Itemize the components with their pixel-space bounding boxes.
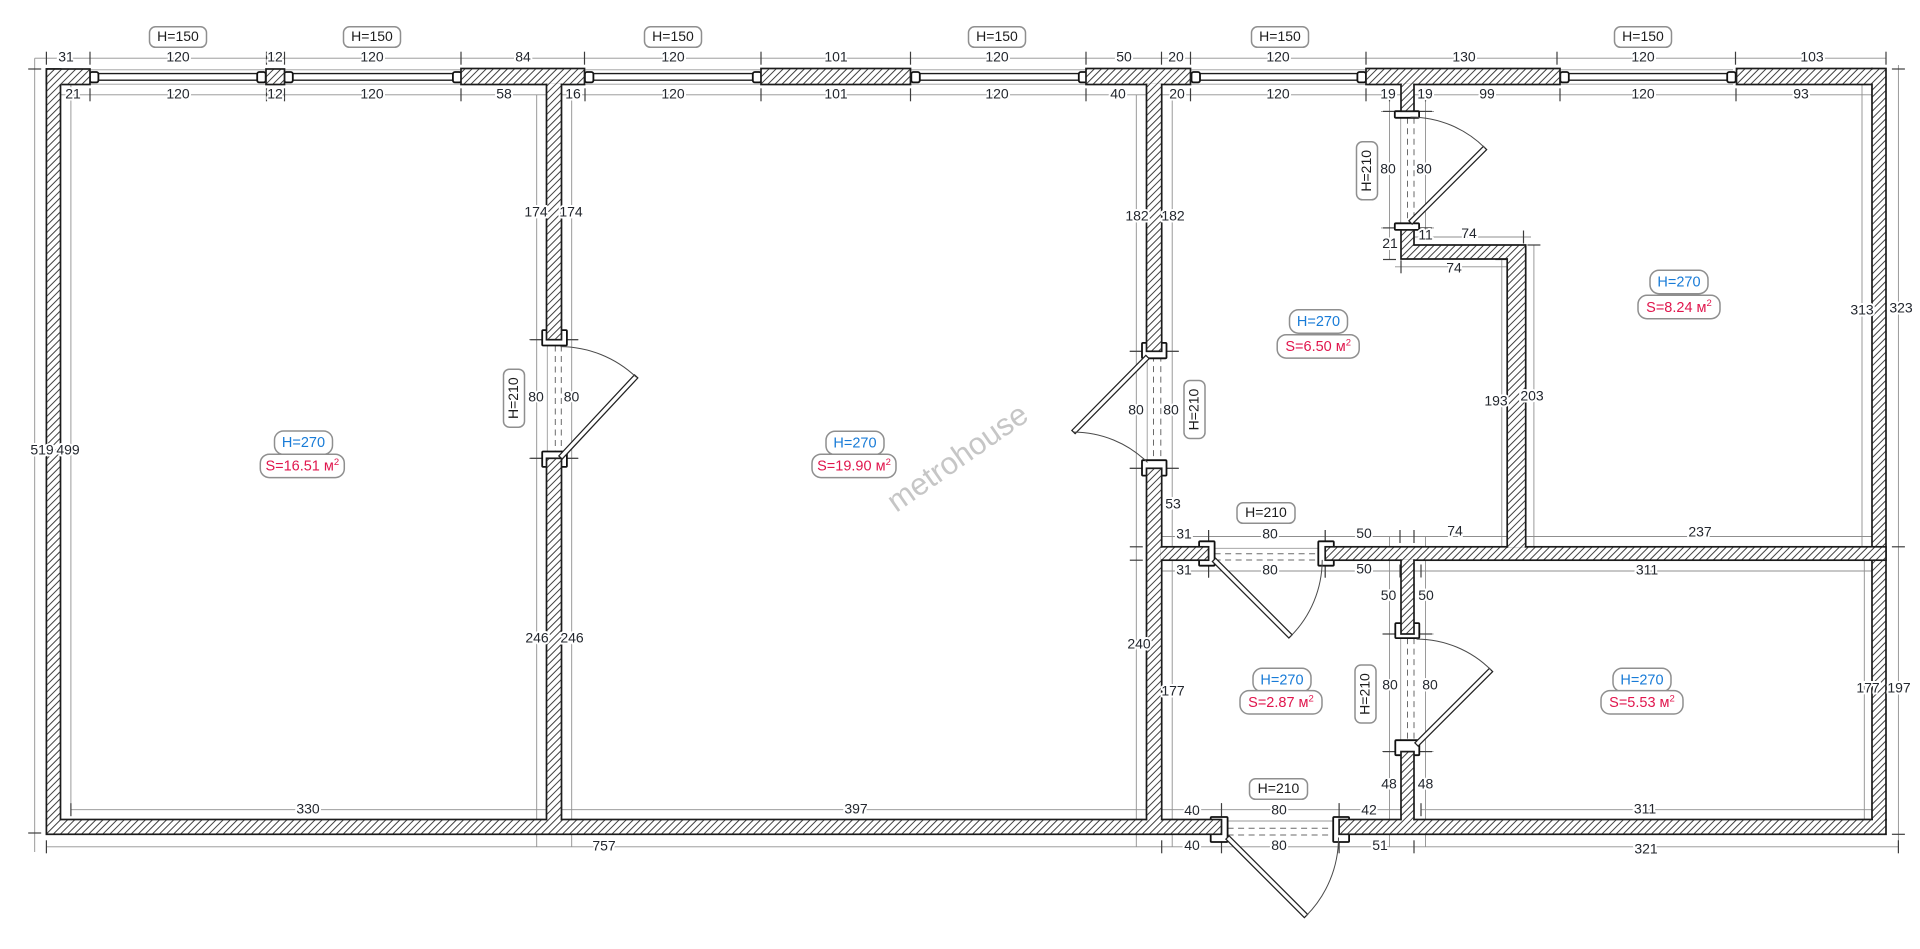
svg-text:311: 311 [1634,801,1657,817]
svg-text:519: 519 [30,442,54,458]
svg-text:20: 20 [1168,49,1184,65]
svg-text:74: 74 [1461,225,1477,241]
svg-text:174: 174 [559,204,583,220]
svg-text:16: 16 [565,86,581,102]
svg-text:84: 84 [515,49,531,65]
svg-text:120: 120 [360,86,384,102]
svg-text:31: 31 [1176,526,1192,542]
svg-text:74: 74 [1447,523,1463,539]
svg-text:120: 120 [1266,49,1290,65]
svg-text:S=2.87 м2: S=2.87 м2 [1248,693,1314,711]
svg-text:H=270: H=270 [1657,274,1700,290]
svg-text:80: 80 [1271,837,1287,853]
svg-text:177: 177 [1856,680,1880,696]
svg-text:S=16.51 м2: S=16.51 м2 [265,456,339,474]
svg-text:H=210: H=210 [1258,780,1300,796]
svg-text:11: 11 [1418,227,1433,243]
svg-text:80: 80 [1416,161,1432,177]
svg-text:103: 103 [1800,49,1824,65]
svg-text:H=270: H=270 [1260,672,1303,688]
svg-text:48: 48 [1381,776,1397,792]
svg-text:246: 246 [525,630,549,646]
svg-text:246: 246 [560,630,584,646]
svg-text:330: 330 [296,800,320,816]
svg-text:58: 58 [496,86,512,102]
svg-text:80: 80 [1262,526,1278,542]
svg-text:240: 240 [1127,636,1151,652]
svg-text:40: 40 [1184,837,1200,853]
svg-text:80: 80 [564,389,580,405]
svg-text:S=5.53 м2: S=5.53 м2 [1609,693,1675,711]
svg-text:H=210: H=210 [1357,673,1373,715]
svg-text:H=150: H=150 [157,28,199,44]
svg-text:H=210: H=210 [1186,388,1202,430]
svg-text:101: 101 [824,86,848,102]
svg-text:311: 311 [1636,562,1659,578]
svg-text:80: 80 [1163,402,1179,418]
svg-text:H=270: H=270 [1620,672,1663,688]
svg-text:197: 197 [1887,680,1911,696]
svg-text:H=150: H=150 [1622,28,1664,44]
svg-text:19: 19 [1417,86,1433,102]
svg-text:50: 50 [1356,525,1372,541]
svg-text:H=210: H=210 [1358,150,1374,192]
svg-text:93: 93 [1793,86,1809,102]
svg-text:313: 313 [1850,302,1874,318]
svg-text:20: 20 [1169,86,1185,102]
svg-text:48: 48 [1418,776,1434,792]
svg-text:80: 80 [528,389,544,405]
svg-text:H=270: H=270 [282,435,325,451]
svg-text:H=150: H=150 [976,28,1018,44]
svg-text:74: 74 [1446,260,1462,276]
svg-text:19: 19 [1380,86,1396,102]
svg-text:120: 120 [985,86,1009,102]
svg-text:80: 80 [1422,677,1438,693]
svg-text:397: 397 [844,800,868,816]
svg-text:S=6.50 м2: S=6.50 м2 [1285,337,1351,355]
svg-text:499: 499 [56,442,80,458]
svg-text:40: 40 [1184,802,1200,818]
svg-text:120: 120 [166,86,190,102]
svg-text:80: 80 [1271,802,1287,818]
svg-text:H=270: H=270 [833,435,876,451]
svg-text:12: 12 [267,49,283,65]
svg-text:182: 182 [1125,208,1149,224]
svg-text:120: 120 [1631,49,1655,65]
svg-text:237: 237 [1688,524,1712,540]
svg-text:12: 12 [267,86,283,102]
svg-text:80: 80 [1262,562,1278,578]
svg-text:182: 182 [1161,208,1185,224]
svg-text:321: 321 [1634,841,1658,857]
svg-text:130: 130 [1452,49,1476,65]
svg-text:50: 50 [1418,587,1434,603]
svg-text:120: 120 [985,49,1009,65]
svg-text:H=150: H=150 [652,28,694,44]
svg-text:120: 120 [661,49,685,65]
svg-text:757: 757 [592,838,616,854]
svg-text:120: 120 [1631,86,1655,102]
svg-text:323: 323 [1889,300,1913,316]
svg-text:50: 50 [1356,561,1372,577]
svg-text:H=210: H=210 [505,377,521,419]
svg-text:99: 99 [1479,86,1495,102]
svg-text:80: 80 [1382,677,1398,693]
svg-text:21: 21 [1382,235,1398,251]
svg-text:42: 42 [1361,802,1377,818]
svg-text:21: 21 [65,86,81,102]
svg-text:80: 80 [1380,161,1396,177]
svg-text:193: 193 [1484,393,1508,409]
svg-text:31: 31 [1176,562,1192,578]
svg-text:50: 50 [1381,587,1397,603]
svg-text:203: 203 [1520,388,1544,404]
svg-text:S=8.24 м2: S=8.24 м2 [1646,298,1712,316]
svg-text:31: 31 [58,49,74,65]
svg-text:H=150: H=150 [1259,28,1301,44]
svg-text:H=270: H=270 [1297,314,1340,330]
svg-text:S=19.90 м2: S=19.90 м2 [817,456,891,474]
svg-text:174: 174 [524,204,548,220]
svg-text:H=210: H=210 [1245,504,1287,520]
svg-text:177: 177 [1161,683,1185,699]
svg-text:80: 80 [1128,402,1144,418]
svg-text:51: 51 [1372,837,1388,853]
svg-text:101: 101 [824,49,848,65]
svg-text:40: 40 [1110,86,1126,102]
svg-text:120: 120 [166,49,190,65]
svg-text:53: 53 [1165,496,1181,512]
svg-text:120: 120 [360,49,384,65]
svg-text:120: 120 [1266,86,1290,102]
svg-text:50: 50 [1116,49,1132,65]
svg-text:H=150: H=150 [351,28,393,44]
svg-text:120: 120 [661,86,685,102]
